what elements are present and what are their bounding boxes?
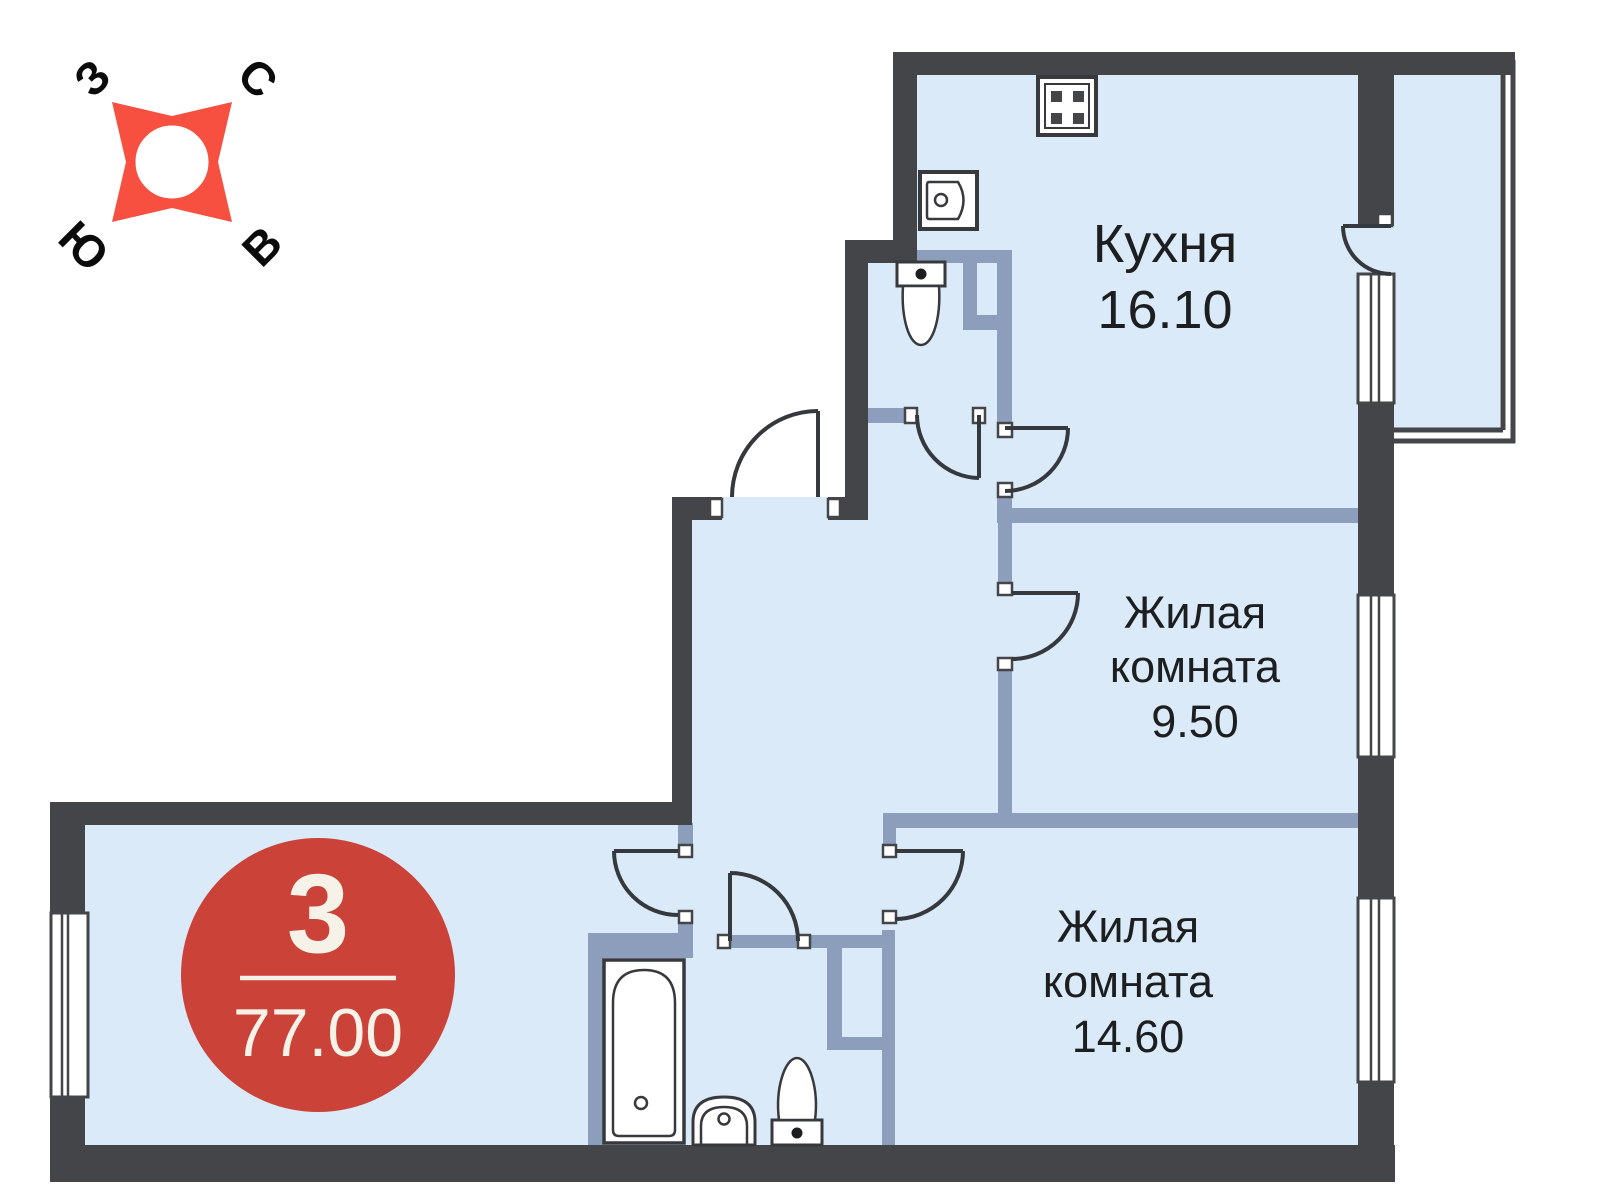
badge-rooms-count: 3 bbox=[287, 851, 349, 976]
compass-north-label: С bbox=[228, 48, 288, 108]
washbasin-icon bbox=[693, 1097, 755, 1145]
living-room-1-window bbox=[1358, 595, 1394, 757]
compass-south-label: Ю bbox=[49, 211, 119, 281]
area-badge: 3 77.00 bbox=[181, 838, 455, 1112]
badge-total-area: 77.00 bbox=[233, 995, 403, 1071]
living-room-2-window bbox=[1358, 898, 1394, 1082]
compass-east-label: В bbox=[232, 216, 292, 276]
entrance-door bbox=[732, 411, 818, 497]
floor-plan: Кухня 16.10 Жилая комната 9.50 Жилая ком… bbox=[0, 0, 1600, 1200]
stove-icon bbox=[1038, 77, 1096, 135]
living-room-1-label-line2: комната bbox=[1110, 641, 1281, 692]
balcony-floor bbox=[1394, 70, 1500, 430]
floor-plan-page: Кухня 16.10 Жилая комната 9.50 Жилая ком… bbox=[0, 0, 1600, 1200]
kitchen-sink-icon bbox=[920, 172, 977, 229]
living-room-2-label-line2: комната bbox=[1043, 956, 1214, 1007]
compass: З С Ю В bbox=[49, 48, 292, 281]
living-room-2-area: 14.60 bbox=[1072, 1011, 1185, 1062]
living-room-1-label-line1: Жилая bbox=[1124, 587, 1266, 638]
living-room-1-area: 9.50 bbox=[1151, 696, 1239, 747]
left-wing-window bbox=[51, 913, 88, 1097]
living-room-2-label-line1: Жилая bbox=[1057, 901, 1199, 952]
kitchen-label: Кухня bbox=[1093, 214, 1238, 274]
kitchen-balcony-window bbox=[1358, 274, 1394, 403]
bathtub-icon bbox=[604, 960, 684, 1143]
kitchen-area: 16.10 bbox=[1097, 280, 1232, 340]
compass-west-label: З bbox=[63, 49, 120, 106]
compass-circle bbox=[134, 124, 210, 200]
